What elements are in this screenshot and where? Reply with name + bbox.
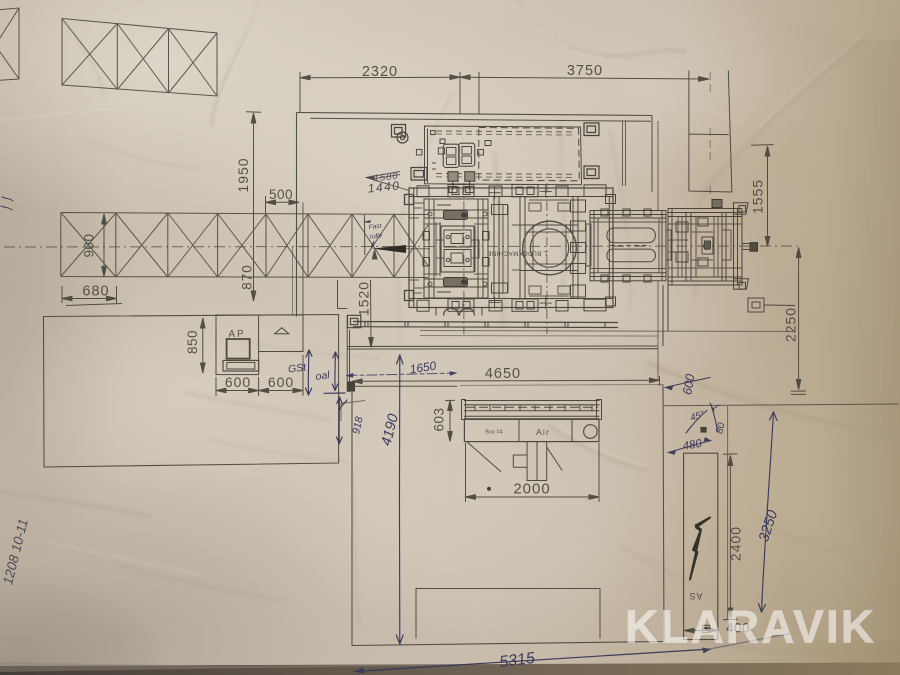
svg-text:4650: 4650 <box>485 366 521 382</box>
svg-text:4190: 4190 <box>379 412 402 447</box>
svg-text:900: 900 <box>82 233 97 257</box>
svg-text:1950: 1950 <box>235 157 251 192</box>
svg-text:3250: 3250 <box>756 508 781 544</box>
svg-text:600: 600 <box>225 374 251 390</box>
svg-text:rulle: rulle <box>369 232 383 241</box>
svg-text:3750: 3750 <box>567 63 603 79</box>
svg-text:1520: 1520 <box>356 281 372 316</box>
svg-text:500: 500 <box>269 187 293 202</box>
svg-text:1555: 1555 <box>750 179 766 214</box>
svg-text:918: 918 <box>350 415 365 435</box>
svg-text:850: 850 <box>185 330 200 354</box>
svg-text:KLARAVIK: KLARAVIK <box>625 601 876 653</box>
svg-text:603: 603 <box>432 407 447 431</box>
svg-text:600: 600 <box>680 373 697 396</box>
svg-text:Fast: Fast <box>368 222 383 231</box>
svg-text:680: 680 <box>82 284 109 300</box>
svg-text:GSt: GSt <box>287 361 307 375</box>
svg-text:2000: 2000 <box>513 481 550 498</box>
svg-text:600: 600 <box>268 374 294 390</box>
svg-text:2250: 2250 <box>783 307 799 342</box>
svg-text:AS: AS <box>688 591 702 601</box>
svg-text:L BLOCKMACHINE: L BLOCKMACHINE <box>487 249 547 256</box>
svg-text:1208 10-11: 1208 10-11 <box>0 517 31 586</box>
svg-text:oal: oal <box>315 369 331 383</box>
svg-text:45°: 45° <box>689 409 706 424</box>
svg-text:2320: 2320 <box>362 64 398 80</box>
svg-text:2400: 2400 <box>728 526 744 561</box>
svg-text:Air: Air <box>536 427 550 437</box>
svg-text:Box #4: Box #4 <box>485 430 502 436</box>
